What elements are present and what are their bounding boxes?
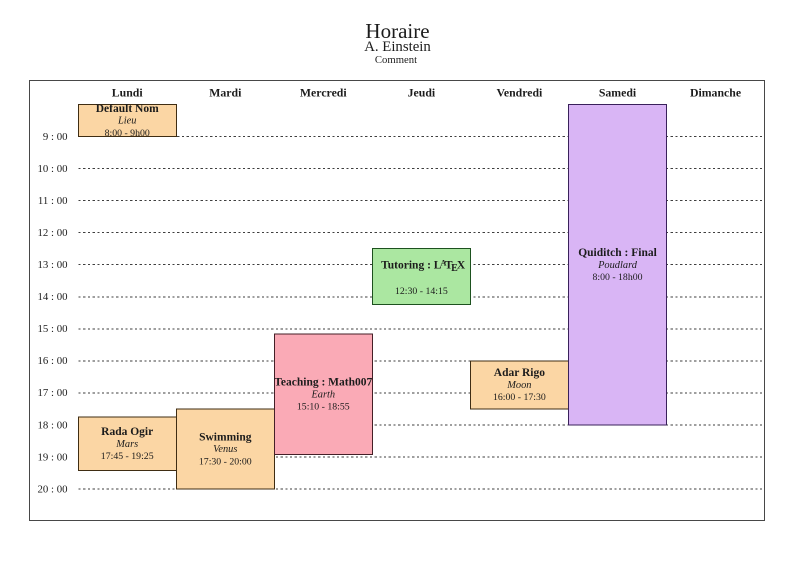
svg-text:16 : 00: 16 : 00 [38,355,68,367]
svg-text:9 : 00: 9 : 00 [43,131,68,143]
svg-text:11 : 00: 11 : 00 [38,195,68,207]
svg-text:15:10 - 18:55: 15:10 - 18:55 [297,402,350,413]
svg-text:16:00 - 17:30: 16:00 - 17:30 [493,392,546,403]
svg-text:Vendredi: Vendredi [496,85,543,99]
svg-text:13 : 00: 13 : 00 [38,259,68,271]
svg-text:Mercredi: Mercredi [300,85,347,99]
svg-text:Samedi: Samedi [599,85,637,99]
svg-text:Swimming: Swimming [199,431,252,443]
svg-text:Rada Ogir: Rada Ogir [101,426,153,438]
svg-text:Mars: Mars [115,439,138,450]
svg-text:Earth: Earth [310,389,335,400]
svg-text:8:00 - 9h00: 8:00 - 9h00 [105,128,150,139]
svg-text:Teaching : Math007: Teaching : Math007 [274,377,372,389]
svg-text:Default Nom: Default Nom [96,103,159,115]
svg-text:Mardi: Mardi [209,85,242,99]
svg-text:12 : 00: 12 : 00 [38,227,68,239]
svg-text:Lieu: Lieu [117,116,136,127]
svg-text:Comment: Comment [375,54,417,66]
svg-text:17 : 00: 17 : 00 [38,387,68,399]
svg-text:Adar Rigo: Adar Rigo [494,367,545,379]
svg-text:19 : 00: 19 : 00 [38,451,68,463]
svg-text:Jeudi: Jeudi [408,85,436,99]
svg-text:20 : 00: 20 : 00 [38,483,68,495]
svg-text:Lundi: Lundi [112,85,144,99]
svg-text:A. Einstein: A. Einstein [364,39,431,55]
svg-text:10 : 00: 10 : 00 [38,163,68,175]
svg-text:12:30 - 14:15: 12:30 - 14:15 [395,286,448,297]
svg-text:18 : 00: 18 : 00 [38,419,68,431]
svg-text:Moon: Moon [506,380,531,391]
svg-text:17:45 - 19:25: 17:45 - 19:25 [101,451,154,462]
svg-text:14 : 00: 14 : 00 [38,291,68,303]
svg-text:8:00 - 18h00: 8:00 - 18h00 [592,272,642,283]
svg-text:17:30 - 20:00: 17:30 - 20:00 [199,456,252,467]
svg-text:Quiditch : Final: Quiditch : Final [578,247,657,259]
svg-text:Dimanche: Dimanche [690,85,741,99]
svg-text:15 : 00: 15 : 00 [38,323,68,335]
svg-text:Venus: Venus [213,444,237,455]
svg-text:Poudlard: Poudlard [597,260,638,271]
